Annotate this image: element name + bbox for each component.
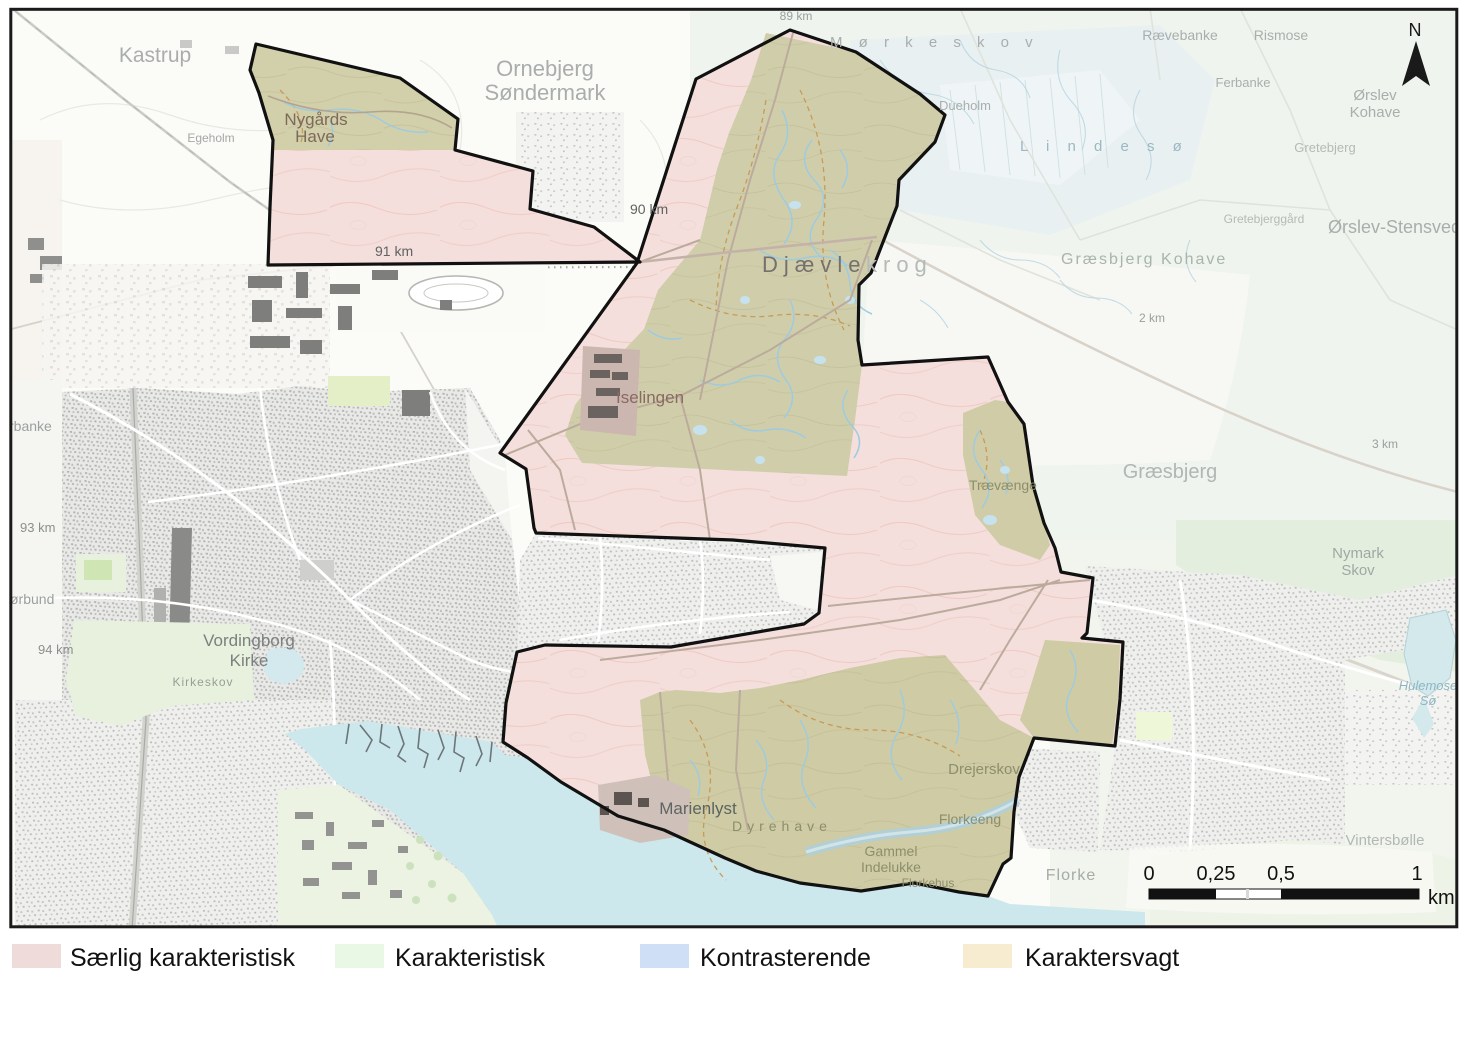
svg-text:km: km [1428, 887, 1455, 909]
svg-text:Rævebanke: Rævebanke [1142, 27, 1218, 43]
svg-text:Have: Have [295, 127, 335, 146]
svg-text:Nymark: Nymark [1332, 545, 1384, 562]
svg-text:Dyrehave: Dyrehave [732, 818, 832, 834]
svg-text:Gretebjerggård: Gretebjerggård [1224, 212, 1305, 226]
svg-text:rbanke: rbanke [9, 418, 52, 434]
svg-text:Ørslev: Ørslev [1353, 87, 1397, 104]
svg-text:Djævle: Djævle [762, 252, 866, 277]
svg-text:ørbund: ørbund [10, 591, 54, 607]
svg-text:N: N [1409, 20, 1422, 40]
svg-text:0,25: 0,25 [1197, 863, 1236, 885]
svg-text:Kontrasterende: Kontrasterende [700, 944, 871, 972]
svg-text:3 km: 3 km [1372, 437, 1398, 451]
svg-text:Hulemose: Hulemose [1399, 678, 1458, 693]
svg-text:Skov: Skov [1341, 562, 1375, 579]
svg-text:Særlig karakteristisk: Særlig karakteristisk [70, 944, 296, 972]
svg-text:89 km: 89 km [780, 9, 813, 23]
svg-text:Ornebjerg: Ornebjerg [496, 56, 594, 81]
svg-text:94 km: 94 km [38, 642, 73, 657]
svg-text:Vordingborg: Vordingborg [203, 631, 295, 650]
svg-text:Kastrup: Kastrup [119, 44, 191, 67]
svg-text:91 km: 91 km [375, 243, 413, 259]
svg-text:Florkeeng: Florkeeng [939, 811, 1001, 827]
svg-text:Florkehus: Florkehus [902, 876, 955, 890]
svg-text:0,5: 0,5 [1267, 863, 1295, 885]
svg-text:1: 1 [1411, 863, 1422, 885]
svg-text:Marienlyst: Marienlyst [659, 799, 737, 818]
svg-text:2 km: 2 km [1139, 311, 1165, 325]
svg-text:Ørslev-Stensved: Ørslev-Stensved [1328, 217, 1461, 237]
svg-text:Egeholm: Egeholm [187, 131, 234, 145]
svg-text:Græsbjerg Kohave: Græsbjerg Kohave [1061, 251, 1227, 268]
svg-text:Græsbjerg: Græsbjerg [1123, 461, 1217, 483]
svg-text:Kirkeskov: Kirkeskov [172, 675, 233, 689]
svg-text:krog: krog [866, 252, 933, 277]
svg-text:Vintersbølle: Vintersbølle [1346, 832, 1425, 849]
svg-text:Drejerskov: Drejerskov [948, 761, 1020, 778]
svg-text:0: 0 [1143, 863, 1154, 885]
svg-text:Indelukke: Indelukke [861, 859, 921, 875]
svg-text:93 km: 93 km [20, 520, 55, 535]
svg-text:Ferbanke: Ferbanke [1216, 75, 1271, 90]
svg-text:L i n d e s ø: L i n d e s ø [1020, 138, 1189, 155]
svg-text:Rismose: Rismose [1254, 27, 1309, 43]
svg-text:Karakteristisk: Karakteristisk [395, 944, 546, 972]
svg-text:90 km: 90 km [630, 201, 668, 217]
svg-text:Florke: Florke [1046, 867, 1096, 884]
svg-text:Trævænge: Trævænge [969, 477, 1037, 493]
svg-text:Gammel: Gammel [865, 843, 918, 859]
svg-text:Søndermark: Søndermark [484, 80, 606, 105]
svg-text:M ø r k e s k o v: M ø r k e s k o v [830, 34, 1039, 51]
svg-text:Iselingen: Iselingen [616, 388, 684, 407]
svg-text:Karaktersvagt: Karaktersvagt [1025, 944, 1179, 972]
svg-text:Gretebjerg: Gretebjerg [1294, 140, 1355, 155]
svg-text:Kirke: Kirke [230, 651, 269, 670]
svg-text:Dueholm: Dueholm [939, 98, 991, 113]
svg-text:Kohave: Kohave [1350, 104, 1401, 121]
svg-text:Sø: Sø [1420, 693, 1437, 708]
